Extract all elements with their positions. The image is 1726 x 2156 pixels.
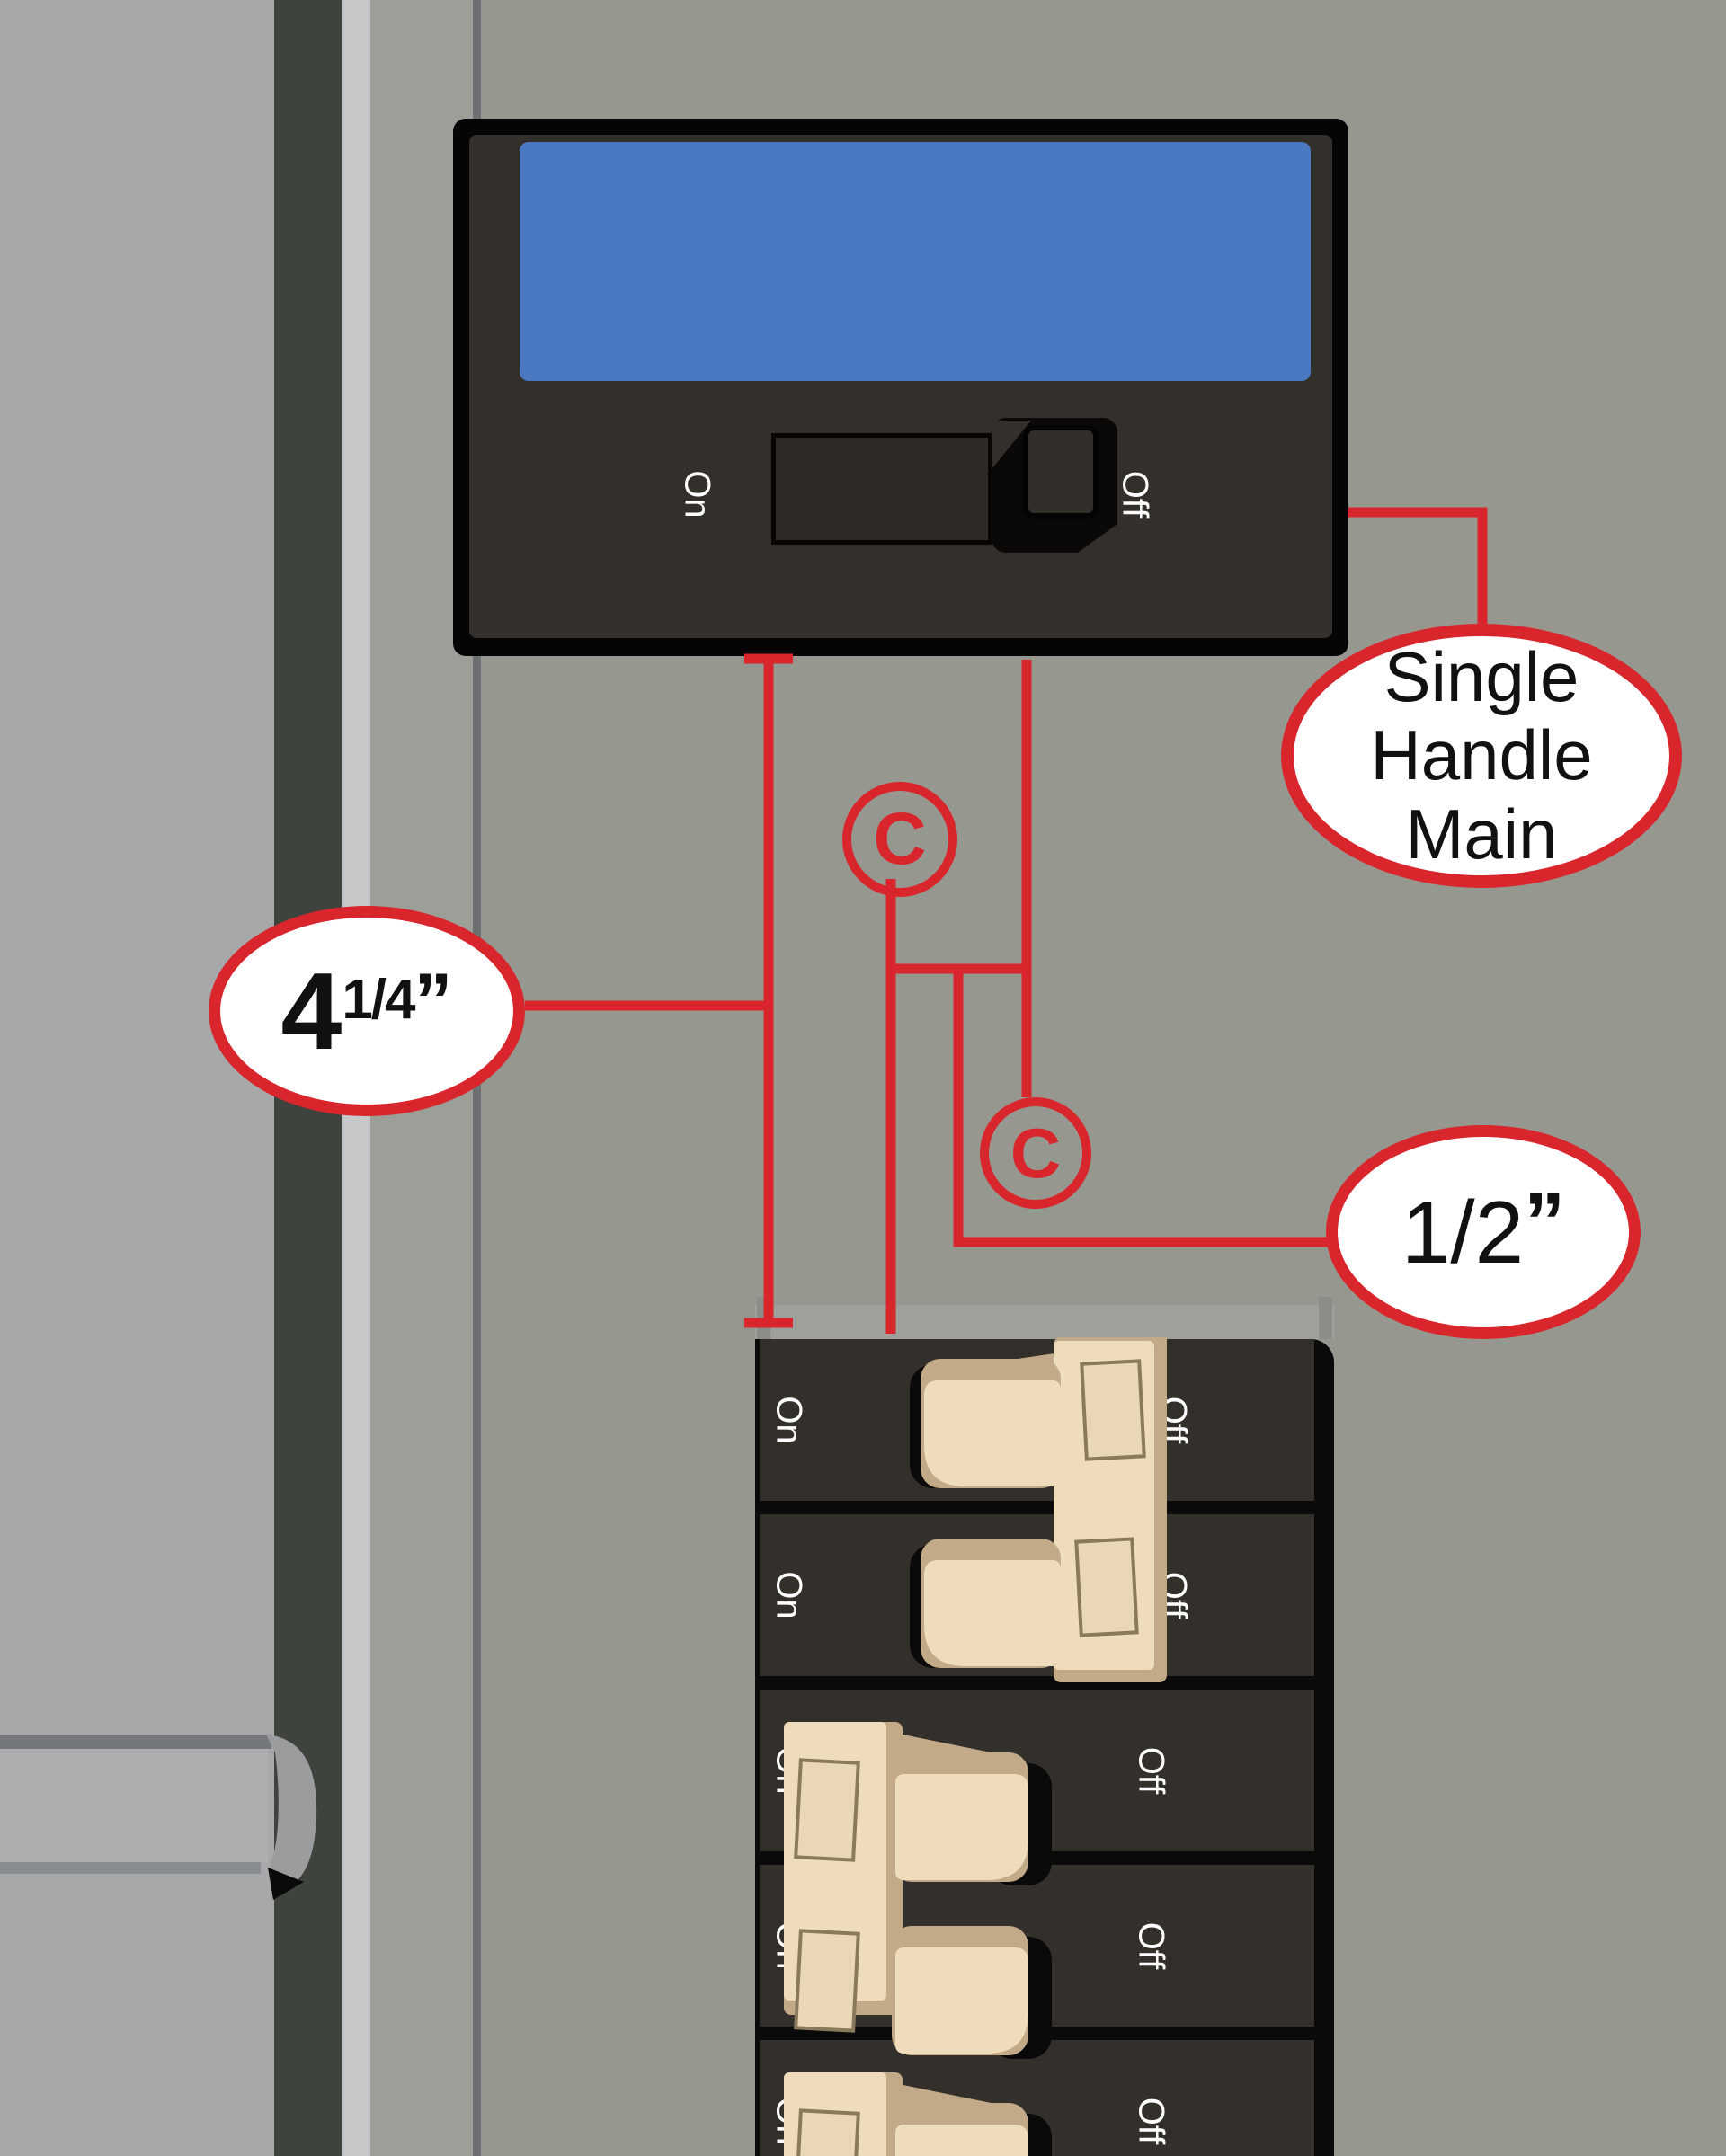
callout-dimension-1-2: 1/2”	[1326, 1125, 1641, 1339]
breaker-panel-diagram: On Off On Off On Off On Off On Off On Of…	[0, 0, 1726, 2156]
centerline-symbol-lower: C	[980, 1097, 1091, 1209]
leader-single-handle-main	[1348, 512, 1482, 629]
dimension-unit: ”	[1524, 1176, 1565, 1268]
centerline-letter: C	[873, 797, 926, 882]
dimension-unit: ”	[414, 958, 453, 1044]
centerline-symbol-upper: C	[842, 782, 957, 897]
callout-line: Handle	[1370, 716, 1592, 794]
dimension-value: 1/2	[1401, 1183, 1524, 1282]
centerline-letter: C	[1010, 1113, 1061, 1194]
callout-line: Main	[1370, 795, 1592, 874]
callout-dimension-4-1-4: 41/4”	[209, 906, 525, 1116]
callout-single-handle-main: Single Handle Main	[1281, 624, 1682, 888]
callout-line: Single	[1370, 638, 1592, 716]
dimension-fraction: 1/4	[342, 969, 414, 1031]
dimension-whole: 4	[280, 950, 342, 1072]
